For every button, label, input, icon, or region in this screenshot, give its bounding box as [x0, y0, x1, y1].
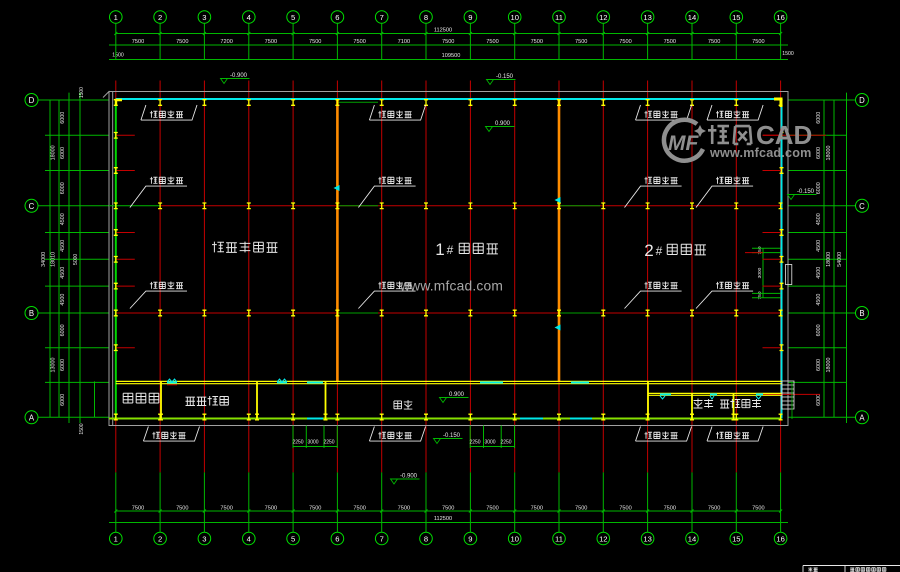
svg-text:18000: 18000: [51, 145, 57, 160]
svg-text:14: 14: [688, 13, 696, 22]
svg-text:2250: 2250: [292, 440, 303, 446]
svg-text:4500: 4500: [816, 213, 822, 225]
svg-text:#: #: [447, 243, 454, 257]
svg-text:4500: 4500: [60, 213, 66, 225]
svg-text:7: 7: [380, 535, 384, 544]
svg-text:18010: 18010: [51, 252, 57, 267]
svg-text:11: 11: [555, 535, 563, 544]
svg-text:C: C: [859, 202, 865, 211]
svg-text:6000: 6000: [816, 359, 822, 371]
svg-text:B: B: [29, 309, 34, 318]
svg-text:7500: 7500: [486, 39, 498, 45]
svg-text:4: 4: [247, 535, 251, 544]
svg-text:54000: 54000: [837, 252, 843, 267]
svg-text:13: 13: [643, 13, 651, 22]
svg-text:750: 750: [757, 246, 763, 254]
svg-text:16: 16: [776, 535, 784, 544]
svg-text:7500: 7500: [265, 506, 277, 512]
svg-text:3: 3: [202, 535, 206, 544]
svg-text:12: 12: [599, 535, 607, 544]
svg-text:10: 10: [510, 535, 518, 544]
svg-text:7500: 7500: [398, 506, 410, 512]
svg-text:C: C: [29, 202, 35, 211]
svg-text:13: 13: [643, 535, 651, 544]
svg-text:4500: 4500: [816, 240, 822, 252]
svg-text:7500: 7500: [132, 506, 144, 512]
svg-text:www.mfcad.com: www.mfcad.com: [399, 279, 503, 294]
svg-text:1: 1: [114, 535, 118, 544]
svg-text:8: 8: [424, 535, 428, 544]
svg-text:18000: 18000: [826, 358, 832, 373]
svg-text:6000: 6000: [816, 324, 822, 336]
svg-text:10: 10: [510, 13, 518, 22]
svg-text:0.900: 0.900: [449, 392, 465, 398]
svg-text:7500: 7500: [752, 506, 764, 512]
svg-text:11: 11: [555, 13, 563, 22]
svg-text:1500: 1500: [112, 53, 124, 59]
svg-text:2250: 2250: [500, 440, 511, 446]
svg-text:9: 9: [468, 13, 472, 22]
svg-text:15: 15: [732, 535, 740, 544]
svg-text:7500: 7500: [176, 506, 188, 512]
svg-text:A: A: [859, 413, 865, 422]
svg-text:4500: 4500: [60, 267, 66, 279]
svg-text:-0.150: -0.150: [496, 74, 514, 80]
svg-text:112500: 112500: [434, 516, 452, 522]
svg-text:MF: MF: [668, 132, 699, 155]
svg-text:7500: 7500: [752, 39, 764, 45]
svg-text:14: 14: [688, 535, 696, 544]
svg-text:7500: 7500: [708, 506, 720, 512]
svg-text:7100: 7100: [398, 39, 410, 45]
svg-text:7500: 7500: [575, 39, 587, 45]
svg-text:0.900: 0.900: [495, 121, 511, 127]
svg-text:4500: 4500: [816, 267, 822, 279]
svg-text:12: 12: [599, 13, 607, 22]
svg-text:7500: 7500: [132, 39, 144, 45]
svg-text:#: #: [656, 244, 663, 258]
svg-text:7500: 7500: [531, 39, 543, 45]
svg-text:7500: 7500: [353, 39, 365, 45]
svg-text:109500: 109500: [442, 53, 461, 59]
svg-text:7500: 7500: [664, 39, 676, 45]
svg-text:18000: 18000: [826, 146, 832, 161]
svg-text:7500: 7500: [353, 506, 365, 512]
svg-text:7500: 7500: [575, 506, 587, 512]
svg-text:7500: 7500: [708, 39, 720, 45]
svg-text:B: B: [859, 309, 864, 318]
svg-text:8: 8: [424, 13, 428, 22]
svg-text:7500: 7500: [664, 506, 676, 512]
svg-text:6000: 6000: [816, 112, 822, 124]
svg-text:-0.150: -0.150: [443, 433, 461, 439]
svg-text:7500: 7500: [220, 506, 232, 512]
svg-text:2: 2: [644, 241, 653, 260]
svg-text:6000: 6000: [816, 147, 822, 159]
svg-text:15: 15: [732, 13, 740, 22]
svg-text:-0.150: -0.150: [797, 189, 815, 195]
svg-text:3000: 3000: [307, 440, 318, 446]
svg-text:7200: 7200: [220, 39, 232, 45]
svg-text:1500: 1500: [79, 423, 85, 434]
svg-text:18000: 18000: [826, 252, 832, 267]
svg-text:D: D: [29, 96, 35, 105]
svg-text:4500: 4500: [60, 240, 66, 252]
svg-text:6000: 6000: [60, 359, 66, 371]
svg-text:6000: 6000: [60, 182, 66, 194]
svg-text:7500: 7500: [619, 506, 631, 512]
svg-text:2: 2: [158, 535, 162, 544]
svg-text:www.mfcad.com: www.mfcad.com: [709, 146, 812, 160]
svg-text:34000: 34000: [41, 252, 47, 267]
svg-text:7500: 7500: [619, 39, 631, 45]
svg-text:7: 7: [380, 13, 384, 22]
svg-text:9: 9: [468, 535, 472, 544]
svg-text:1: 1: [435, 240, 444, 259]
svg-text:16: 16: [776, 13, 784, 22]
svg-text:7500: 7500: [265, 39, 277, 45]
svg-text:6: 6: [335, 535, 339, 544]
svg-text:5: 5: [291, 535, 295, 544]
svg-text:7500: 7500: [176, 39, 188, 45]
svg-text:A: A: [29, 413, 35, 422]
svg-text:7500: 7500: [486, 506, 498, 512]
svg-text:7500: 7500: [442, 506, 454, 512]
svg-text:D: D: [859, 96, 865, 105]
svg-text:6000: 6000: [60, 324, 66, 336]
svg-text:3000: 3000: [484, 440, 495, 446]
svg-text:6000: 6000: [60, 147, 66, 159]
svg-text:4500: 4500: [60, 294, 66, 306]
svg-text:1500: 1500: [782, 51, 794, 57]
svg-text:5000: 5000: [73, 254, 79, 265]
svg-text:6000: 6000: [60, 112, 66, 124]
svg-text:6: 6: [335, 13, 339, 22]
svg-text:7500: 7500: [309, 506, 321, 512]
svg-text:6000: 6000: [816, 394, 822, 406]
svg-text:7500: 7500: [309, 39, 321, 45]
svg-text:4500: 4500: [816, 294, 822, 306]
svg-text:112500: 112500: [434, 28, 452, 34]
svg-text:6000: 6000: [816, 182, 822, 194]
svg-text:13000: 13000: [51, 358, 57, 373]
svg-text:3000: 3000: [757, 267, 763, 278]
svg-text:7500: 7500: [442, 39, 454, 45]
svg-text:2: 2: [158, 13, 162, 22]
svg-text:5: 5: [291, 13, 295, 22]
svg-text:2250: 2250: [323, 440, 334, 446]
svg-text:6000: 6000: [60, 394, 66, 406]
svg-text:-0.900: -0.900: [230, 73, 248, 79]
svg-text:1: 1: [114, 13, 118, 22]
svg-text:-0.900: -0.900: [400, 474, 418, 480]
svg-text:4: 4: [247, 13, 251, 22]
svg-text:3: 3: [202, 13, 206, 22]
svg-text:2250: 2250: [469, 440, 480, 446]
svg-text:1500: 1500: [79, 87, 85, 98]
svg-text:7500: 7500: [531, 506, 543, 512]
